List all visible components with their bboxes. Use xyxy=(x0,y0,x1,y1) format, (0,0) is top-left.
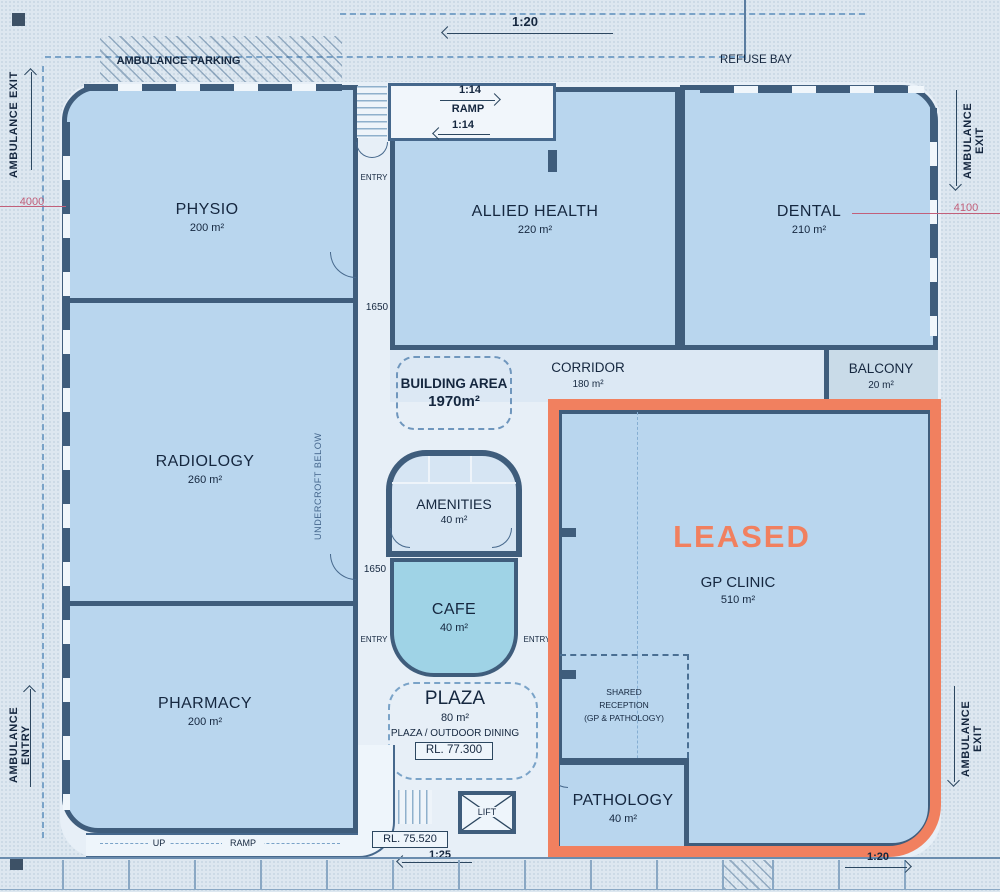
room-name: DENTAL xyxy=(777,203,841,221)
room-name: RADIOLOGY xyxy=(156,453,255,471)
ramp-arrow-shaft xyxy=(440,100,495,101)
parking-divider xyxy=(194,860,196,889)
ramp-arrow-shaft xyxy=(438,134,490,135)
slope-label-top: 1:20 xyxy=(480,15,570,30)
kerb-line xyxy=(0,857,1000,859)
parking-divider xyxy=(392,860,394,889)
parking-divider xyxy=(260,860,262,889)
room-label-corridor: CORRIDOR 180 m² xyxy=(488,355,688,395)
room-name: CAFE xyxy=(432,601,476,619)
room-label-cafe: CAFE 40 m² xyxy=(394,596,514,640)
wall xyxy=(548,150,557,172)
room-area: 200 m² xyxy=(188,716,222,729)
dim-1650-label: 1650 xyxy=(358,564,392,576)
room-area: 40 m² xyxy=(440,622,468,635)
arrow-right-icon xyxy=(899,860,912,873)
dimension-line xyxy=(0,206,66,207)
parking-divider xyxy=(326,860,328,889)
wall xyxy=(62,298,358,303)
room-name: ALLIED HEALTH xyxy=(472,203,599,221)
ramp-label: RAMP xyxy=(440,103,496,116)
direction-arrow-shaft xyxy=(30,689,31,787)
undercroft-label: UNDERCROFT BELOW xyxy=(313,430,329,542)
ambulance-exit-left-label: AMBULANCE EXIT xyxy=(8,70,24,180)
plaza-rl-box: RL. 77.300 xyxy=(415,742,493,760)
plaza-area-label: 80 m² xyxy=(395,712,515,725)
stall-divider xyxy=(428,456,430,482)
rl-lower-box: RL. 75.520 xyxy=(372,831,448,848)
ambulance-exit-right-bottom-label: AMBULANCE EXIT xyxy=(960,688,976,790)
site-dashed-line xyxy=(340,13,865,15)
wall xyxy=(62,601,358,606)
parking-divider xyxy=(458,860,460,889)
entry-label: ENTRY xyxy=(360,173,388,182)
lift-label: LIFT xyxy=(462,807,512,817)
window-strip xyxy=(84,84,342,91)
arrow-up-icon xyxy=(23,685,36,698)
window-strip xyxy=(930,108,937,336)
room-label-amenities: AMENITIES 40 m² xyxy=(394,490,514,532)
site-dashed-line xyxy=(42,66,44,838)
stairs xyxy=(357,86,387,138)
leased-outline xyxy=(548,399,941,857)
room-area: 200 m² xyxy=(190,222,224,235)
room-label-allied-health: ALLIED HEALTH 220 m² xyxy=(435,198,635,242)
ambulance-entry-label: AMBULANCE ENTRY xyxy=(8,690,24,800)
room-label-balcony: BALCONY 20 m² xyxy=(824,354,938,398)
room-area: 20 m² xyxy=(868,380,894,392)
parking-divider xyxy=(772,860,774,889)
building-area-title: BUILDING AREA xyxy=(401,376,508,392)
room-name: CORRIDOR xyxy=(551,360,625,376)
direction-arrow-shaft xyxy=(31,72,32,170)
entry-label: ENTRY xyxy=(360,635,388,644)
parking-divider xyxy=(62,860,64,889)
parking-hatch-stall xyxy=(724,860,772,889)
arrow-up-icon xyxy=(24,68,37,81)
slope-arrow-shaft xyxy=(402,862,472,863)
parking-divider xyxy=(838,860,840,889)
room-name: PHYSIO xyxy=(176,201,239,219)
direction-arrow-shaft xyxy=(954,686,955,782)
floor-plan: AMBULANCE PARKING REFUSE BAY 1:20 1:14 R… xyxy=(0,0,1000,892)
stall-divider xyxy=(470,456,472,482)
ramp-centerline xyxy=(100,843,340,844)
building-area-value: 1970m² xyxy=(428,393,480,410)
parking-divider xyxy=(656,860,658,889)
parking-divider xyxy=(128,860,130,889)
stairs xyxy=(398,790,432,824)
room-label-pharmacy: PHARMACY 200 m² xyxy=(105,690,305,734)
slope-label-bottom-left: 1:25 xyxy=(418,849,462,862)
parking-divider xyxy=(524,860,526,889)
room-label-physio: PHYSIO 200 m² xyxy=(107,196,307,240)
arrow-left-icon xyxy=(441,26,454,39)
room-area: 40 m² xyxy=(441,514,468,526)
room-label-dental: DENTAL 210 m² xyxy=(709,198,909,242)
plaza-name: PLAZA xyxy=(395,688,515,710)
room-area: 220 m² xyxy=(518,224,552,237)
slope-label-bottom-right: 1:20 xyxy=(856,851,900,864)
ambulance-parking-label: AMBULANCE PARKING xyxy=(96,55,261,68)
slope-arrow-shaft xyxy=(447,33,613,34)
rl-lower-value: RL. 75.520 xyxy=(383,833,437,846)
room-area: 210 m² xyxy=(792,224,826,237)
survey-marker xyxy=(12,13,25,26)
plaza-subtitle: PLAZA / OUTDOOR DINING xyxy=(375,728,535,740)
room-name: BALCONY xyxy=(849,361,914,377)
ambulance-exit-right-top-label: AMBULANCE EXIT xyxy=(962,88,978,194)
stall-divider xyxy=(392,482,516,484)
room-area: 180 m² xyxy=(572,379,603,391)
window-strip xyxy=(700,86,924,93)
site-boundary-line xyxy=(744,0,746,60)
arrow-down-icon xyxy=(949,178,962,191)
ramp-slope-a-label: 1:14 xyxy=(442,84,498,97)
arrow-down-icon xyxy=(947,774,960,787)
direction-arrow-shaft xyxy=(956,90,957,186)
dimension-line xyxy=(852,213,1000,214)
room-label-radiology: RADIOLOGY 260 m² xyxy=(105,448,305,492)
dim-1650-label: 1650 xyxy=(360,302,394,314)
building-area-note: BUILDING AREA 1970m² xyxy=(396,356,512,430)
slope-arrow-shaft xyxy=(845,867,907,868)
parking-divider xyxy=(590,860,592,889)
refuse-bay-label: REFUSE BAY xyxy=(696,54,816,67)
lift-box: LIFT xyxy=(458,791,516,834)
kerb-line xyxy=(0,889,1000,890)
ramp-slope-b-label: 1:14 xyxy=(435,119,491,132)
window-strip xyxy=(63,122,70,810)
room-area: 260 m² xyxy=(188,474,222,487)
plaza-rl-value: RL. 77.300 xyxy=(426,744,482,757)
room-name: PHARMACY xyxy=(158,695,252,713)
room-name: AMENITIES xyxy=(416,496,491,512)
ramp-bottom-label: RAMP xyxy=(222,838,264,848)
up-label: UP xyxy=(148,838,170,848)
